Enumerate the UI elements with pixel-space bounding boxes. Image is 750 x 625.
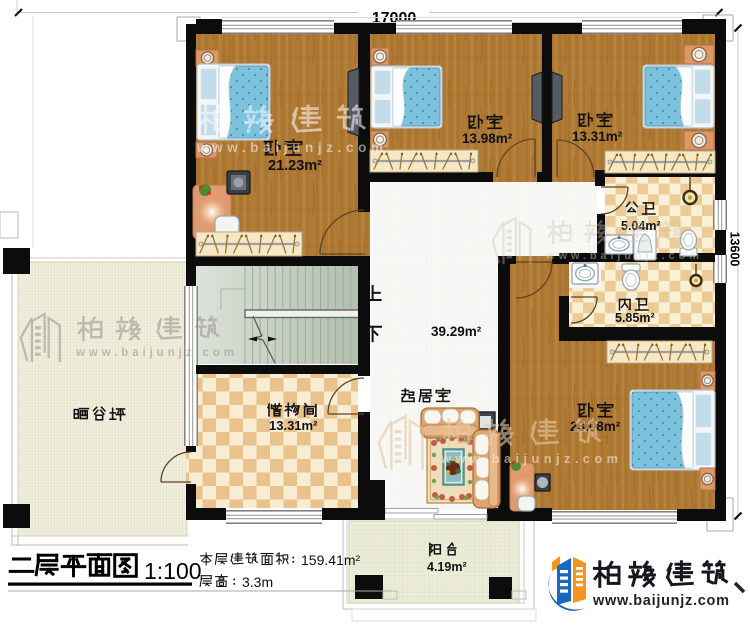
svg-text:3.3m: 3.3m [242,574,273,590]
svg-text:13600: 13600 [728,232,742,267]
svg-text:39.29m²: 39.29m² [431,324,482,339]
svg-text:13.31m²: 13.31m² [269,418,318,433]
svg-text:5.85m²: 5.85m² [615,311,655,325]
svg-text:21.23m²: 21.23m² [268,158,322,174]
svg-text:4.19m²: 4.19m² [427,560,467,574]
svg-text:13.98m²: 13.98m² [462,131,513,146]
svg-text:www.baijunjz.com: www.baijunjz.com [592,593,729,609]
svg-text:159.41m²: 159.41m² [301,552,360,568]
svg-text:1:100: 1:100 [144,558,202,584]
svg-text:13.31m²: 13.31m² [572,129,623,144]
